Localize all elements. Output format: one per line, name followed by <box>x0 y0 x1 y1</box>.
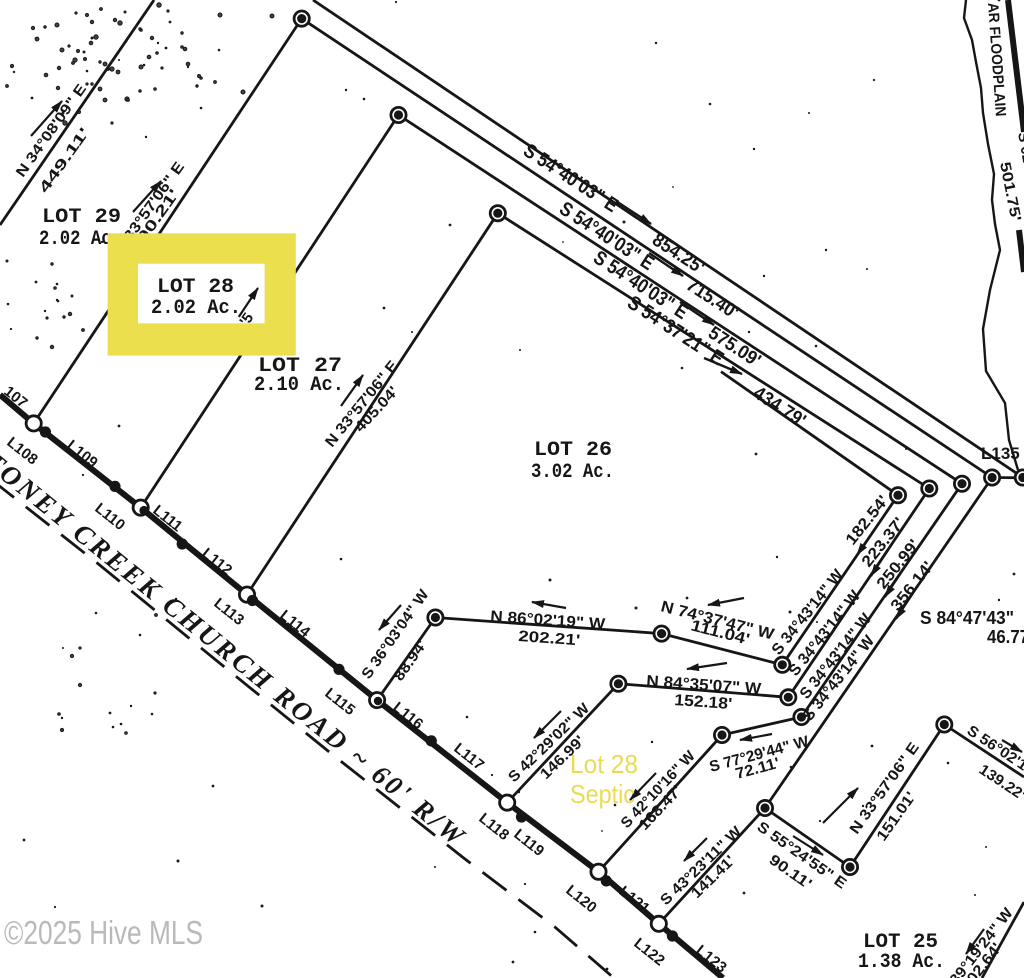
svg-text:3.02 Ac.: 3.02 Ac. <box>531 461 614 484</box>
svg-text:LOT 29: LOT 29 <box>42 206 121 229</box>
svg-text:S 84°47'43": S 84°47'43" <box>920 608 1014 628</box>
svg-text:Lot 28: Lot 28 <box>570 749 638 779</box>
svg-text:©2025 Hive MLS: ©2025 Hive MLS <box>4 914 203 951</box>
svg-text:LOT 26: LOT 26 <box>534 439 612 462</box>
svg-text:LOT 28: LOT 28 <box>157 276 234 299</box>
svg-text:46.77: 46.77 <box>987 627 1024 647</box>
svg-text:L135: L135 <box>981 444 1020 463</box>
svg-text:2.02 Ac.: 2.02 Ac. <box>151 297 241 320</box>
svg-text:Septic: Septic <box>570 779 635 809</box>
svg-text:2.10 Ac.: 2.10 Ac. <box>254 374 344 397</box>
svg-text:1.38 Ac.: 1.38 Ac. <box>858 951 945 974</box>
